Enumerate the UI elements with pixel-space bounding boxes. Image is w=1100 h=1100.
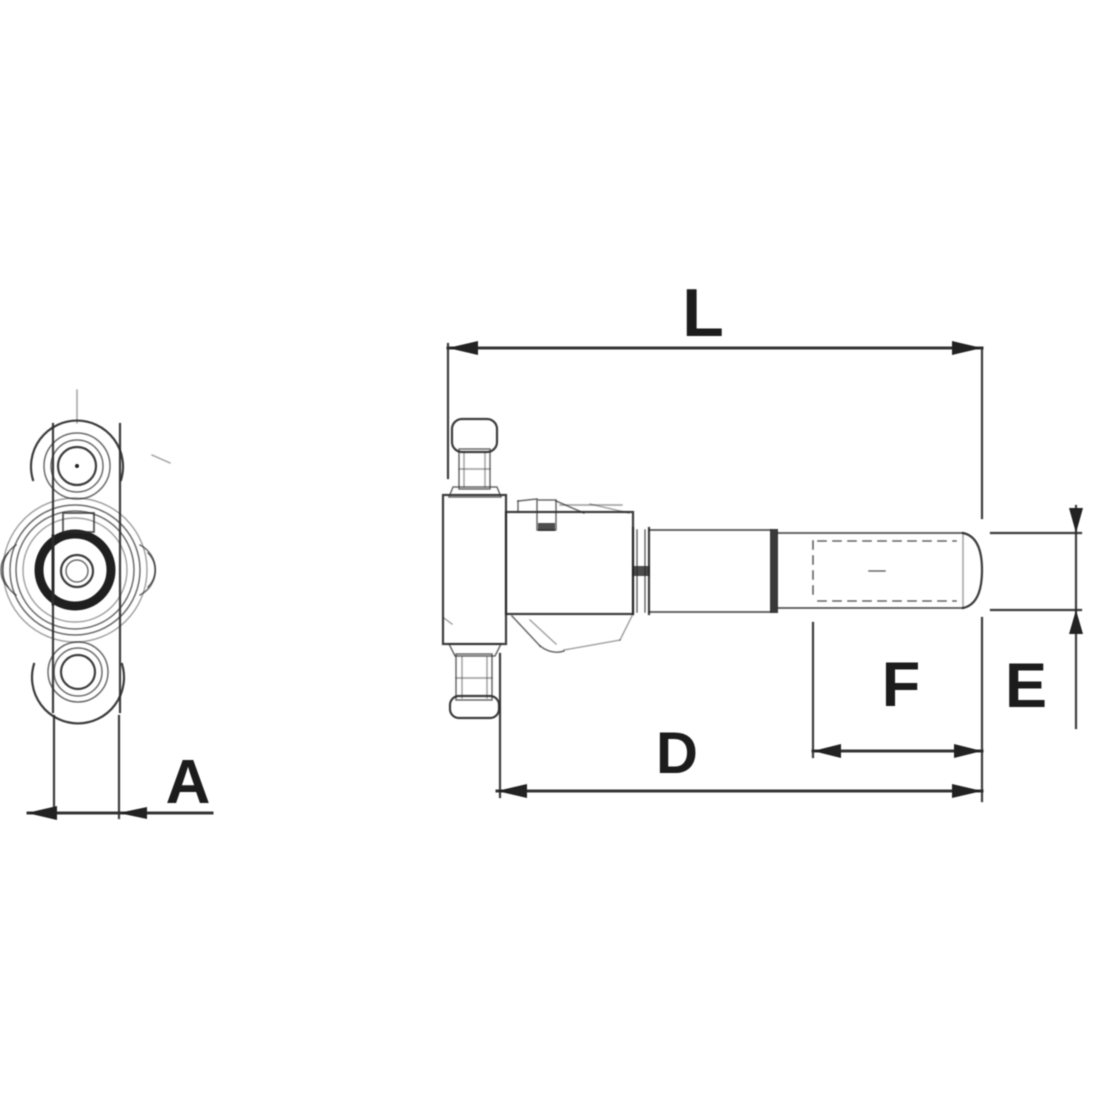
- mid-shaft: [649, 530, 770, 612]
- arrowhead-icon: [952, 784, 982, 798]
- arrowhead-icon: [448, 341, 478, 355]
- drawing-page: A L: [0, 0, 1100, 1100]
- dimension-L: L: [448, 275, 982, 518]
- arrowhead-icon: [813, 744, 841, 758]
- spindle-side-view: L: [443, 275, 1083, 801]
- bearing-ring: [39, 534, 111, 606]
- arrowhead-icon: [1069, 610, 1083, 634]
- engineering-drawing-canvas: A L: [0, 0, 1100, 1100]
- bottom-stud: [449, 644, 501, 718]
- scan-noise: [152, 455, 452, 624]
- flange-front-view: A: [1, 390, 212, 820]
- dimension-E: E: [991, 506, 1083, 728]
- dimension-F: F: [813, 623, 982, 758]
- arrowhead-icon: [119, 807, 147, 819]
- top-stud: [449, 419, 501, 497]
- dimension-label-f: F: [882, 650, 920, 720]
- dimension-label-a: A: [166, 748, 211, 817]
- body-bottom-collar: [512, 616, 632, 652]
- arrowhead-icon: [952, 341, 982, 355]
- step-ring: [632, 528, 650, 614]
- body-top-collar: [518, 499, 629, 531]
- dimension-label-d: D: [656, 721, 698, 786]
- keyway-notch: [63, 513, 94, 532]
- central-boss: [3, 498, 147, 642]
- dimension-A: A: [27, 716, 212, 820]
- arrowhead-icon: [497, 784, 527, 798]
- arrowhead-icon: [954, 744, 982, 758]
- flange-plate: [443, 495, 506, 644]
- spindle-body: [506, 512, 633, 614]
- shaft-shoulder: [770, 529, 778, 613]
- arrowhead-icon: [27, 806, 57, 820]
- dimension-label-e: E: [1005, 651, 1047, 721]
- top-bolt-lobe: [31, 421, 123, 499]
- thread-hidden-outline: [813, 541, 956, 601]
- shaft-tip: [963, 533, 982, 608]
- dimension-label-l: L: [682, 275, 724, 351]
- bottom-bolt-lobe: [32, 642, 124, 723]
- arrowhead-icon: [1069, 508, 1083, 533]
